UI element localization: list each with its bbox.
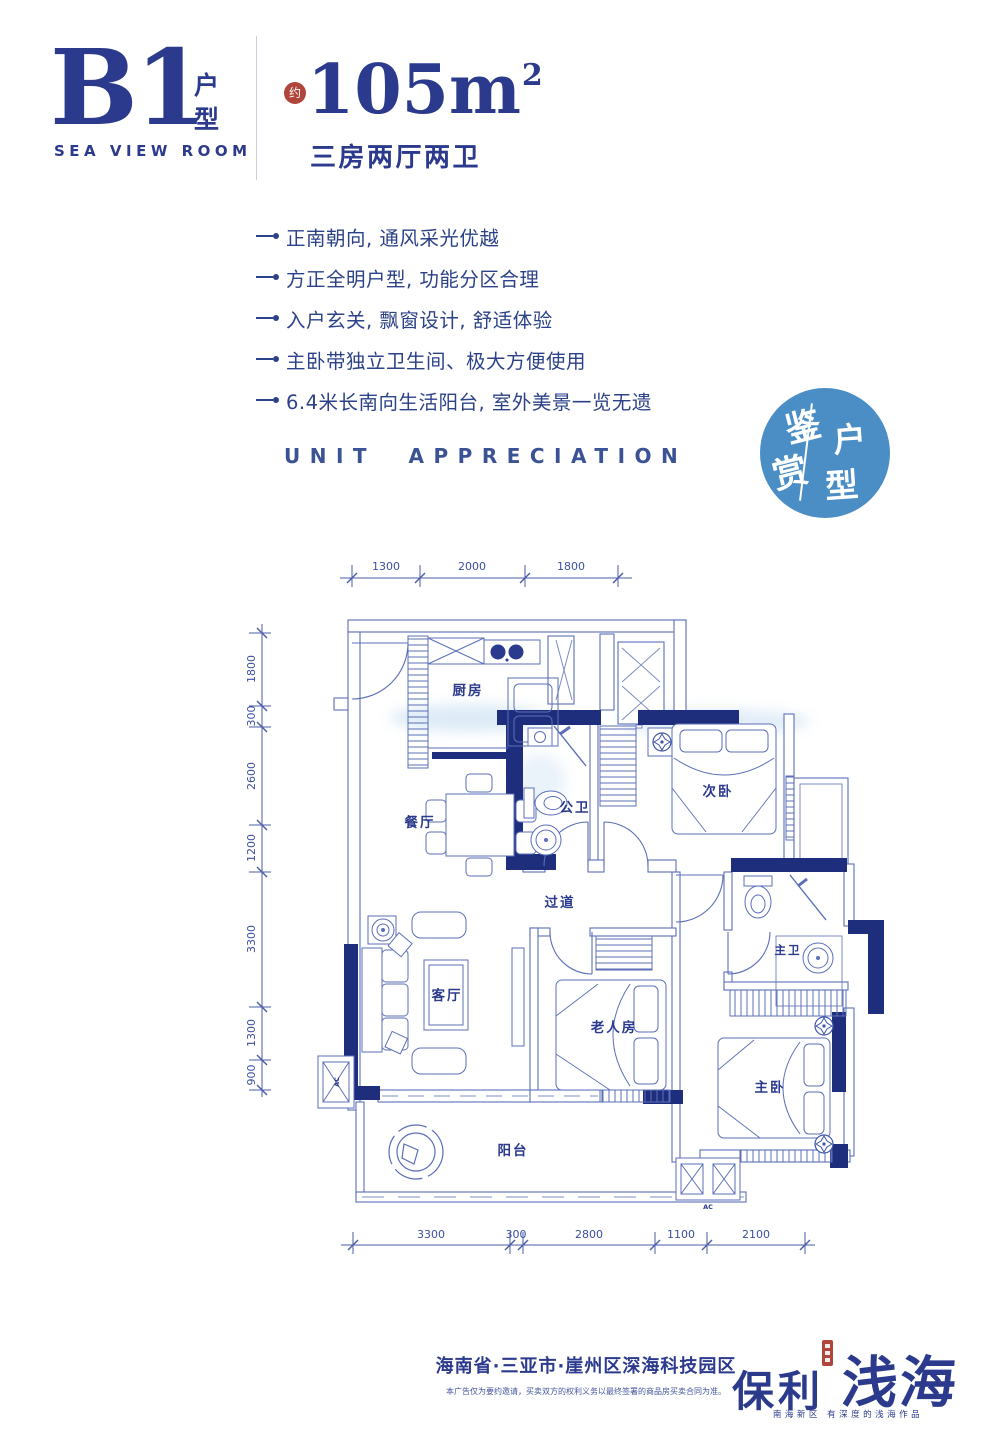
flyer-page: B1 户 型 SEA VIEW ROOM 约 105m2 三房两厅两卫 正南朝向… [0,0,1000,1434]
dim-label: 3300 [417,1228,445,1241]
room-label-balcony: 阳台 [498,1142,529,1159]
dimension-chain-left: 1800 300 2600 1200 3300 1300 900 [245,624,271,1097]
dimension-chain-top: 1300 2000 1800 [340,560,632,587]
brand-seal-icon [822,1340,833,1366]
dim-label: 2100 [742,1228,770,1241]
dim-label: 1300 [372,560,400,573]
dim-label: 300 [506,1228,527,1241]
ac-label: AC [703,1203,713,1211]
room-label-living: 客厅 [431,987,463,1004]
room-label-public-bath: 公卫 [560,800,591,816]
floorplan-drawing: 1300 2000 1800 1800 300 2600 1200 3300 1… [0,0,1000,1434]
nightstand-flower-icon [653,733,671,751]
room-label-hallway: 过道 [545,894,576,911]
ac-unit-bottom [676,1158,740,1200]
balcony-chair [389,1125,443,1179]
dim-label: 2600 [245,762,258,790]
nightstand-flower-icon [815,1135,833,1153]
dim-label: 1800 [557,560,585,573]
dim-label: 900 [245,1065,258,1086]
project-address: 海南省·三亚市·崖州区深海科技园区 [400,1352,772,1378]
nightstand-flower-icon [815,1017,833,1035]
brand-tagline: 南海新区 有深度的浅海作品 [736,1408,960,1420]
room-label-master-bedroom: 主卧 [755,1079,786,1096]
dim-label: 1100 [667,1228,695,1241]
room-label-dining: 餐厅 [404,814,436,831]
room-label-master-bath: 主卫 [775,943,802,957]
dim-label: 300 [245,706,258,727]
dim-label: 2800 [575,1228,603,1241]
room-label-second-bedroom: 次卧 [703,783,734,800]
room-label-kitchen: 厨房 [453,682,484,699]
dim-label: 1300 [245,1019,258,1047]
brand-name-right: 浅海 [839,1338,961,1419]
dim-label: 2000 [458,560,486,573]
dim-label: 1200 [245,834,258,862]
room-label-elder-room: 老人房 [591,1019,638,1036]
dimension-chain-bottom: 3300 300 2800 1100 2100 [341,1228,815,1254]
brand-logo: 保利 浅海 [730,1334,965,1412]
ac-label: AC [333,1077,341,1087]
dim-label: 1800 [245,655,258,683]
legal-disclaimer: 本广告仅为要约邀请，买卖双方的权利义务以最终签署的商品房买卖合同为准。 [400,1386,772,1397]
dim-label: 3300 [245,925,258,953]
